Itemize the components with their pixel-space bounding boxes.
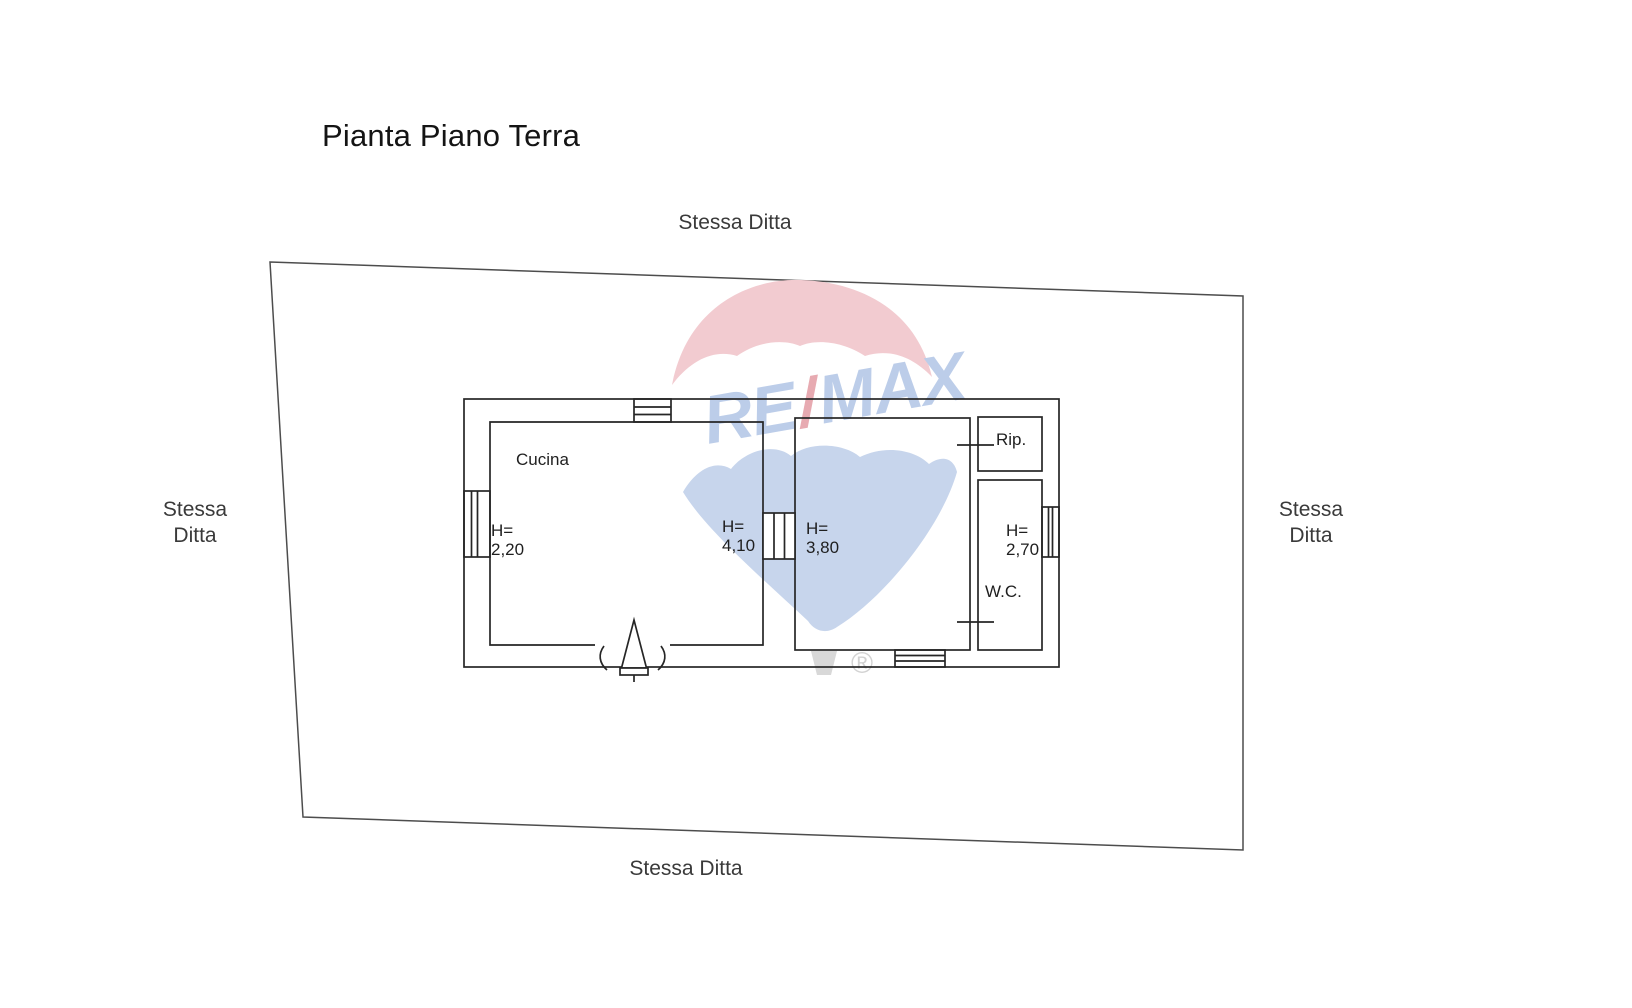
remax-balloon-basket — [811, 651, 837, 675]
room-wc-walls — [978, 480, 1042, 650]
height-label-living: H= 3,80 — [806, 519, 839, 557]
internal-door-opening — [763, 513, 795, 559]
remax-wordmark-re: RE — [697, 367, 805, 459]
entrance-threshold — [620, 668, 648, 675]
entrance-arrow-icon — [622, 620, 647, 668]
floor-plan-page: RE/MAX ® — [0, 0, 1632, 1008]
window-top — [634, 399, 671, 422]
room-label-cucina: Cucina — [516, 450, 569, 469]
entrance-symbol — [600, 620, 665, 682]
remax-watermark: RE/MAX ® — [672, 280, 976, 680]
window-left — [464, 491, 490, 557]
remax-wordmark: RE/MAX — [697, 337, 975, 459]
height-label-cucina-right: H= 4,10 — [722, 517, 755, 555]
adjacent-label-bottom: Stessa Ditta — [611, 856, 761, 882]
window-bottom — [895, 650, 945, 667]
registered-trademark-icon: ® — [851, 647, 873, 680]
adjacent-label-right: Stessa Ditta — [1236, 497, 1386, 549]
height-label-cucina-left: H= 2,20 — [491, 521, 524, 559]
room-label-wc: W.C. — [985, 582, 1022, 601]
window-right — [1042, 507, 1059, 557]
adjacent-label-left: Stessa Ditta — [120, 497, 270, 549]
height-label-wc: H= 2,70 — [1006, 521, 1039, 559]
page-title: Pianta Piano Terra — [322, 118, 580, 154]
remax-wordmark-max: MAX — [812, 337, 976, 438]
adjacent-label-top: Stessa Ditta — [660, 210, 810, 236]
room-label-rip: Rip. — [996, 430, 1026, 449]
